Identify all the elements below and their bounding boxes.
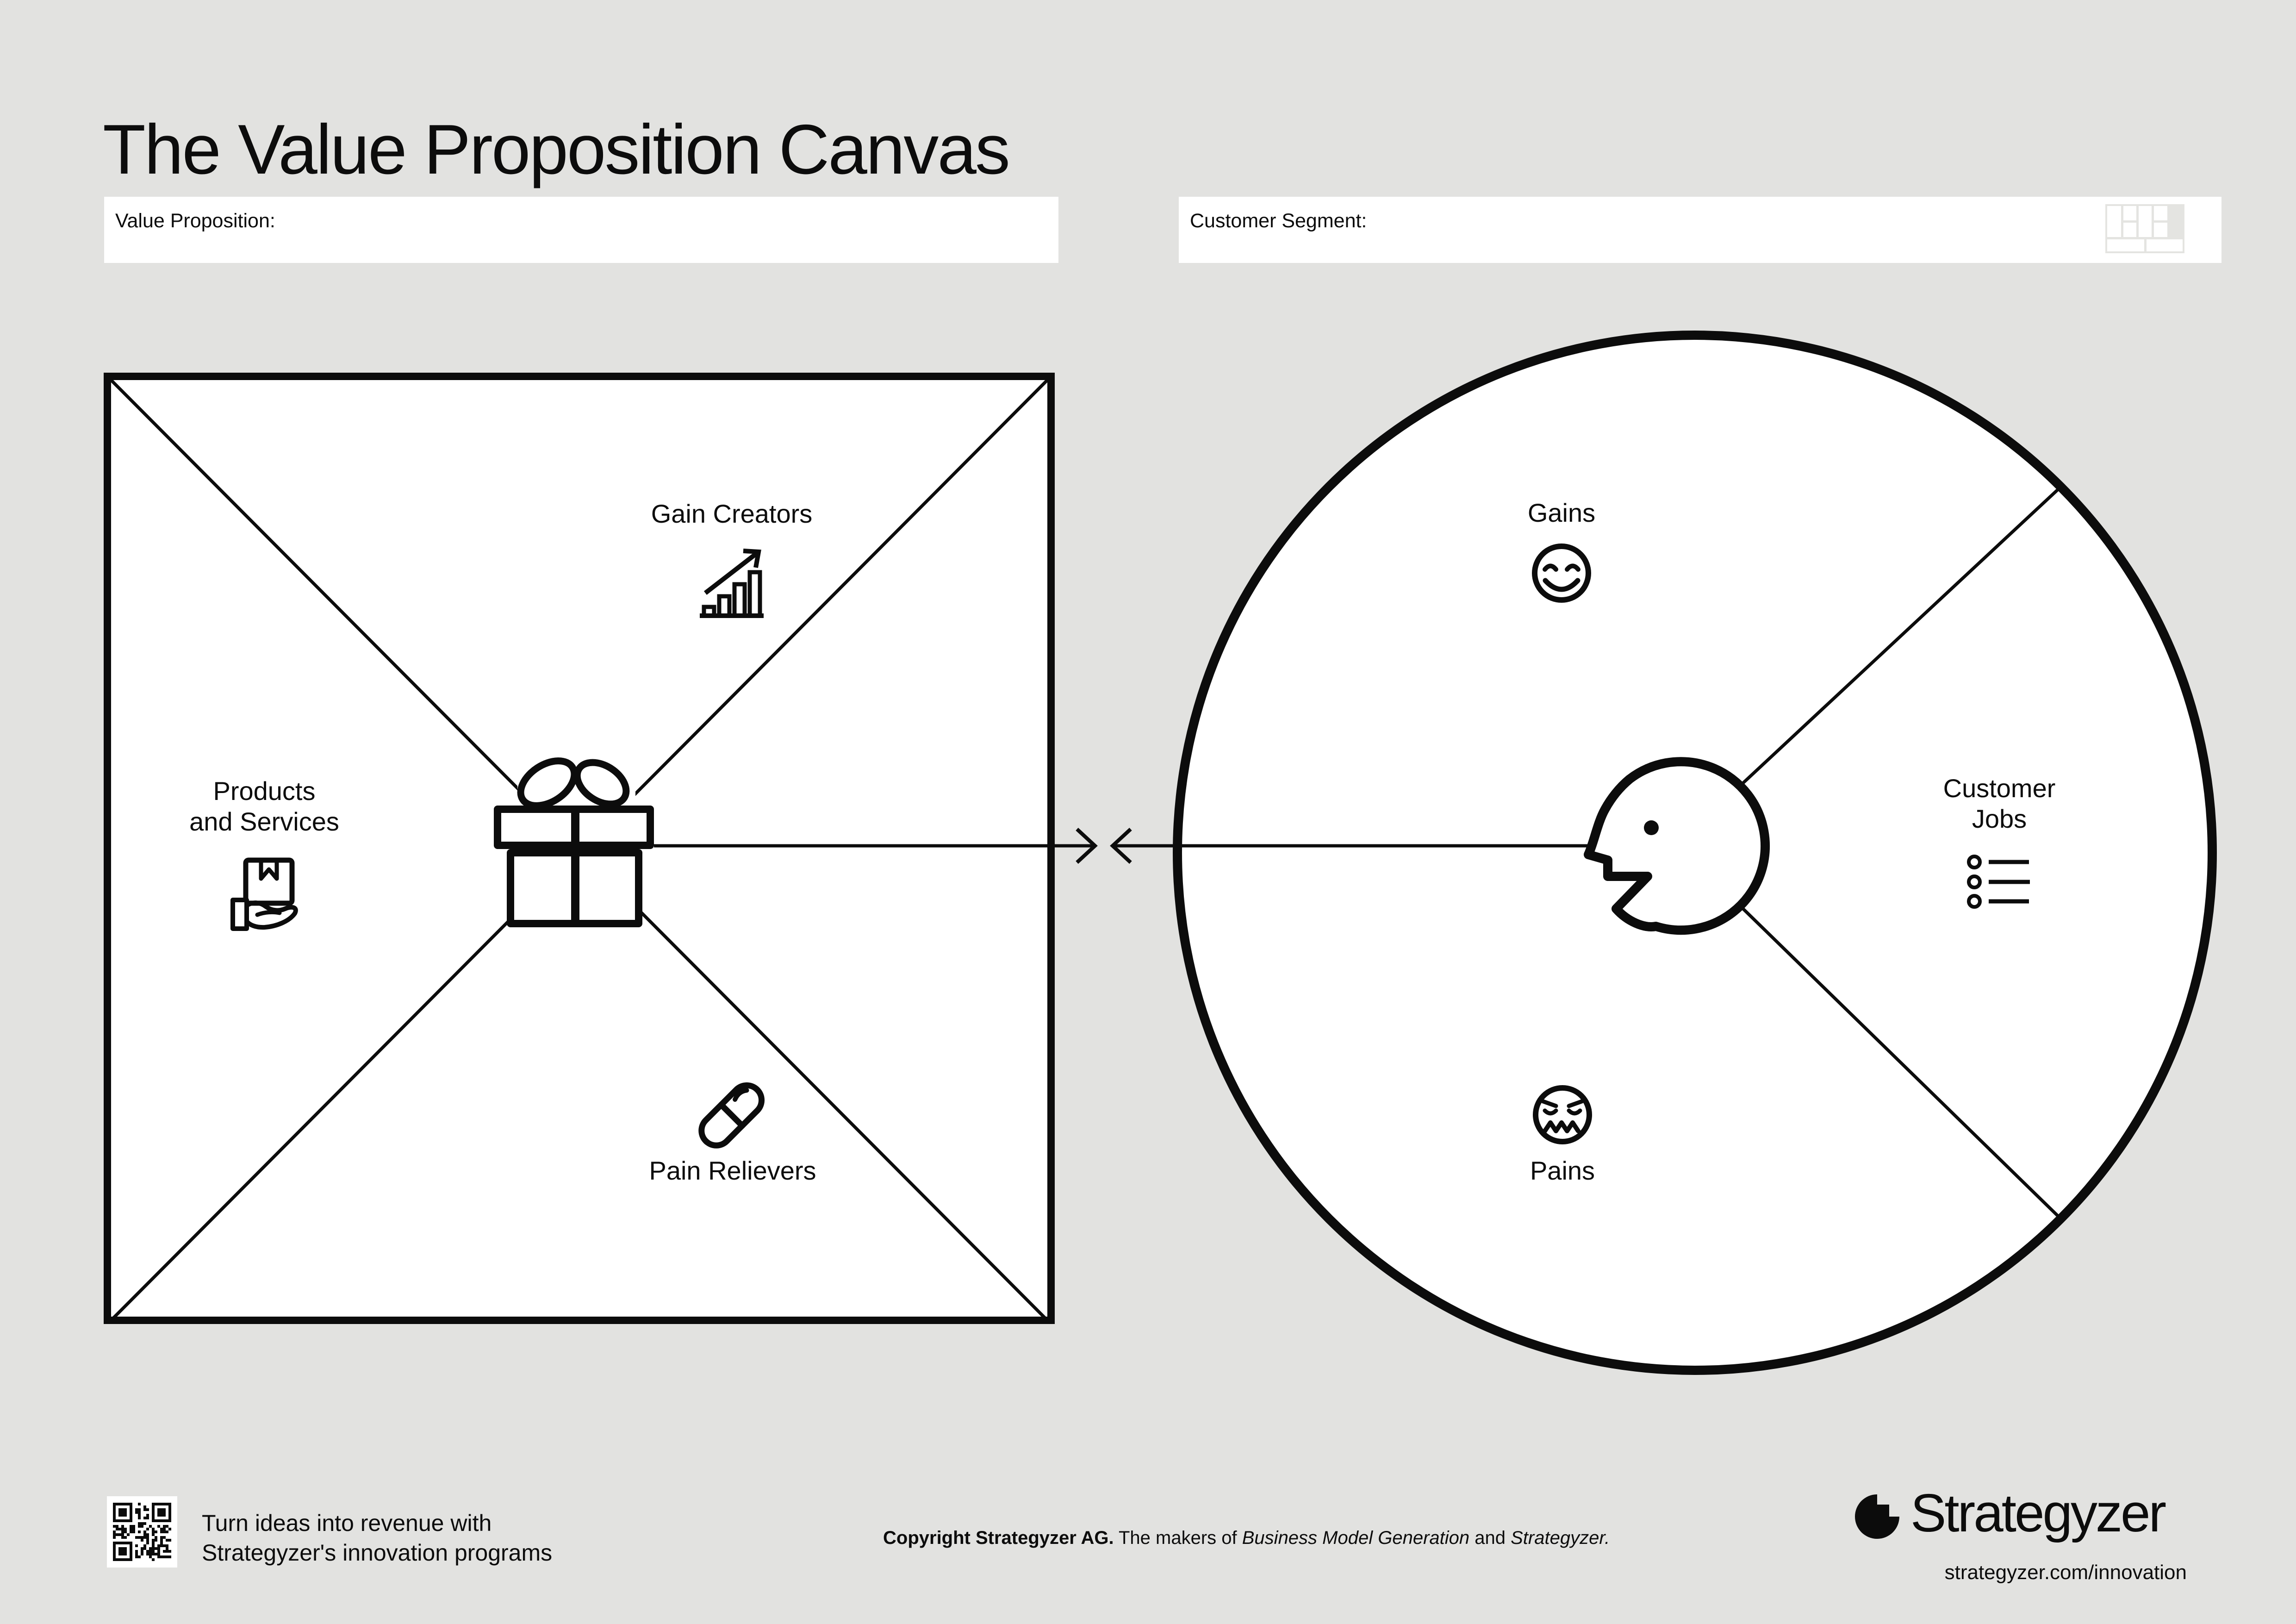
gift-box-icon [498,752,650,924]
bmc-cell [2154,223,2167,237]
products-label-line1: Products [125,776,403,806]
bmc-cell [2147,239,2183,251]
copyright-italic1: Business Model Generation [1242,1528,1469,1548]
pains-label: Pains [1424,1156,1701,1186]
bmc-cell [2107,239,2144,251]
page-title: The Value Proposition Canvas [103,106,1009,194]
customer-jobs-label-line2: Jobs [1860,804,2138,834]
bmc-cell [2154,206,2167,220]
copyright-bold: Copyright Strategyzer AG. [883,1528,1114,1548]
gains-label: Gains [1423,498,1700,528]
value-proposition-label: Value Proposition: [115,210,275,232]
customer-jobs-label: Customer Jobs [1860,773,2138,834]
copyright-italic2: Strategyzer. [1511,1528,1610,1548]
products-and-services-label: Products and Services [125,776,403,837]
promo-line1: Turn ideas into revenue with [202,1508,552,1538]
pain-relievers-label: Pain Relievers [548,1156,918,1186]
website-url[interactable]: strategyzer.com/innovation [1945,1561,2187,1584]
promo-text: Turn ideas into revenue with Strategyzer… [202,1508,552,1568]
bmc-cell [2123,223,2136,237]
value-proposition-field[interactable]: Value Proposition: [104,197,1058,263]
qr-code-icon [107,1496,177,1568]
copyright-regular: The makers of [1114,1528,1242,1548]
promo-line2: Strategyzer's innovation programs [202,1538,552,1568]
customer-segment-label: Customer Segment: [1190,210,1367,232]
customer-jobs-label-line1: Customer [1860,773,2138,804]
bmc-cell [2123,206,2136,220]
customer-segment-field[interactable]: Customer Segment: [1179,197,2221,263]
business-model-canvas-icon [2105,204,2184,253]
value-proposition-canvas-page: The Value Proposition Canvas Value Propo… [0,0,2296,1624]
strategyzer-wordmark: Strategyzer [1910,1486,2165,1540]
gain-creators-label: Gain Creators [547,499,917,529]
copyright-and: and [1469,1528,1511,1548]
head-eye-dot [1644,820,1659,835]
bmc-cell [2107,206,2121,237]
products-label-line2: and Services [125,806,403,837]
copyright-text: Copyright Strategyzer AG. The makers of … [883,1528,1610,1548]
strategyzer-logo-icon [1855,1492,1904,1539]
bmc-cell [2139,206,2152,237]
